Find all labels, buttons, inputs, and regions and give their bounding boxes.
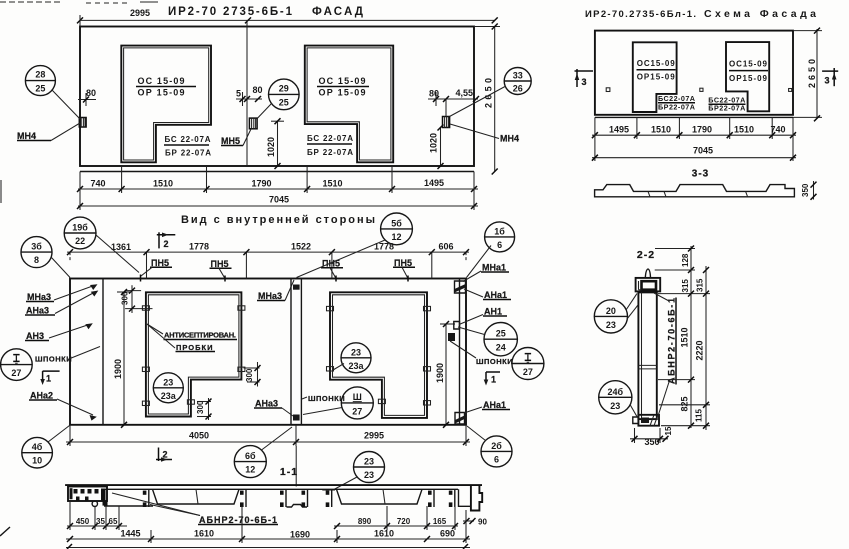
svg-text:ОР 15-09: ОР 15-09	[138, 88, 185, 98]
svg-text:ШПОНКИ: ШПОНКИ	[35, 355, 72, 364]
svg-text:1790: 1790	[251, 179, 271, 189]
svg-text:5б: 5б	[391, 218, 402, 228]
svg-text:6: 6	[494, 454, 499, 464]
svg-text:1510: 1510	[153, 179, 173, 189]
svg-text:740: 740	[90, 179, 105, 189]
svg-text:6: 6	[497, 240, 502, 250]
svg-text:35: 35	[96, 517, 105, 526]
svg-text:АНа3: АНа3	[255, 399, 278, 409]
svg-text:12: 12	[245, 465, 255, 475]
svg-text:6б: 6б	[245, 451, 256, 461]
svg-text:29: 29	[279, 83, 289, 93]
svg-text:Схема Фасада: Схема Фасада	[704, 8, 818, 20]
svg-text:80: 80	[253, 85, 263, 95]
svg-text:1900: 1900	[113, 359, 123, 379]
svg-text:АБНР2-70-6Б-1: АБНР2-70-6Б-1	[199, 515, 277, 525]
svg-text:26: 26	[513, 84, 523, 94]
svg-text:20: 20	[606, 306, 616, 316]
svg-text:315: 315	[696, 278, 705, 292]
svg-text:АБНР2-70-6Б-1: АБНР2-70-6Б-1	[667, 298, 677, 384]
svg-text:АНТИСЕПТИРОВАН.: АНТИСЕПТИРОВАН.	[164, 331, 236, 340]
svg-text:10: 10	[32, 456, 42, 466]
svg-text:8: 8	[34, 255, 39, 265]
svg-text:1-1: 1-1	[280, 466, 298, 478]
svg-text:БС 22-07А: БС 22-07А	[307, 134, 353, 143]
svg-text:ОР15-09: ОР15-09	[729, 74, 768, 83]
svg-text:1510: 1510	[680, 327, 690, 347]
svg-text:300: 300	[245, 368, 254, 382]
svg-text:4050: 4050	[189, 431, 209, 441]
svg-text:1510: 1510	[734, 125, 754, 135]
svg-text:27: 27	[352, 406, 362, 416]
svg-text:825: 825	[680, 396, 690, 411]
svg-text:606: 606	[438, 242, 453, 252]
svg-text:23: 23	[351, 347, 361, 357]
svg-text:ШПОНКИ: ШПОНКИ	[308, 394, 345, 403]
svg-text:27: 27	[11, 368, 21, 378]
svg-text:25: 25	[279, 98, 289, 108]
svg-text:315: 315	[681, 279, 690, 293]
svg-text:65: 65	[109, 517, 118, 526]
svg-text:33: 33	[513, 70, 523, 80]
svg-text:3-3: 3-3	[692, 169, 709, 180]
svg-text:23: 23	[364, 470, 374, 480]
svg-text:Вид с внутренней стороны: Вид с внутренней стороны	[181, 214, 377, 226]
svg-text:23а: 23а	[348, 361, 364, 371]
svg-text:БР 22-07А: БР 22-07А	[165, 149, 211, 158]
svg-text:1445: 1445	[120, 529, 140, 539]
svg-text:АНа1: АНа1	[483, 400, 506, 410]
svg-text:ОР 15-09: ОР 15-09	[319, 88, 366, 98]
svg-text:АНа2: АНа2	[30, 391, 53, 401]
svg-text:ПН5: ПН5	[211, 259, 229, 269]
svg-text:23: 23	[606, 320, 616, 330]
svg-text:БР22-07А: БР22-07А	[708, 104, 745, 113]
svg-text:7045: 7045	[693, 145, 713, 155]
svg-text:ОС15-09: ОС15-09	[637, 59, 676, 68]
svg-text:80: 80	[86, 88, 96, 98]
svg-text:МНа3: МНа3	[258, 291, 282, 301]
svg-text:ОР15-09: ОР15-09	[637, 72, 676, 81]
svg-text:МН5: МН5	[221, 136, 240, 146]
svg-text:ШПОНКИ: ШПОНКИ	[476, 357, 513, 366]
svg-text:1: 1	[46, 374, 51, 384]
svg-text:23а: 23а	[161, 391, 177, 401]
svg-text:3б: 3б	[31, 242, 42, 252]
svg-text:890: 890	[358, 517, 372, 526]
svg-text:АН1: АН1	[484, 307, 502, 317]
svg-text:ПН5: ПН5	[394, 258, 412, 268]
svg-text:БР 22-07А: БР 22-07А	[307, 148, 353, 157]
svg-text:МНа1: МНа1	[482, 263, 506, 273]
svg-text:ОС 15-09: ОС 15-09	[138, 76, 185, 86]
svg-text:1б: 1б	[494, 226, 505, 236]
svg-text:300: 300	[196, 400, 205, 414]
svg-text:740: 740	[770, 125, 785, 135]
svg-text:ОС15-09: ОС15-09	[729, 59, 768, 68]
svg-text:4,55: 4,55	[456, 88, 474, 98]
svg-text:15: 15	[664, 426, 673, 435]
svg-text:ПРОБКИ: ПРОБКИ	[176, 343, 214, 352]
svg-text:128: 128	[681, 253, 690, 267]
svg-text:АНа1: АНа1	[484, 290, 507, 300]
svg-text:АН3: АН3	[26, 331, 44, 341]
svg-text:1510: 1510	[651, 125, 671, 135]
svg-text:1522: 1522	[291, 242, 311, 252]
svg-text:90: 90	[478, 518, 487, 527]
svg-text:720: 720	[397, 517, 411, 526]
svg-text:1610: 1610	[374, 529, 394, 539]
svg-text:1510: 1510	[322, 179, 342, 189]
svg-text:1690: 1690	[290, 530, 310, 540]
svg-text:28: 28	[35, 70, 45, 80]
svg-text:ОС 15-09: ОС 15-09	[319, 76, 366, 86]
svg-text:1: 1	[491, 375, 496, 385]
svg-text:2: 2	[164, 239, 169, 249]
svg-text:690: 690	[440, 529, 455, 539]
svg-text:1778: 1778	[189, 242, 209, 252]
svg-text:ИР2-70 2735-6Б-1: ИР2-70 2735-6Б-1	[168, 6, 294, 18]
svg-text:1790: 1790	[692, 125, 712, 135]
svg-text:350: 350	[801, 183, 810, 197]
svg-text:19б: 19б	[72, 223, 88, 233]
svg-text:115: 115	[695, 409, 704, 422]
svg-text:1020: 1020	[429, 133, 439, 153]
svg-text:2995: 2995	[130, 8, 150, 18]
svg-text:АНа3: АНа3	[26, 306, 49, 316]
svg-text:5: 5	[236, 89, 241, 99]
svg-text:23: 23	[610, 401, 620, 411]
svg-text:24б: 24б	[608, 387, 624, 397]
svg-text:23: 23	[163, 377, 173, 387]
svg-text:3: 3	[825, 76, 830, 86]
svg-text:25: 25	[496, 329, 506, 339]
svg-text:23: 23	[364, 457, 374, 467]
svg-text:2: 2	[163, 450, 168, 460]
svg-text:2б: 2б	[491, 441, 502, 451]
svg-text:1495: 1495	[424, 178, 444, 188]
svg-text:165: 165	[433, 517, 447, 526]
svg-text:12: 12	[391, 232, 401, 242]
svg-text:22: 22	[75, 236, 85, 246]
svg-text:350: 350	[644, 437, 659, 447]
svg-text:1495: 1495	[609, 125, 629, 135]
svg-text:25: 25	[35, 84, 45, 94]
svg-text:2220: 2220	[695, 340, 705, 360]
svg-text:3: 3	[582, 77, 587, 87]
svg-text:БС 22-07А: БС 22-07А	[165, 135, 211, 144]
svg-text:7045: 7045	[269, 195, 289, 205]
svg-text:БР22-07А: БР22-07А	[658, 102, 695, 111]
svg-text:2650: 2650	[807, 59, 817, 88]
svg-text:МН4: МН4	[500, 134, 519, 144]
svg-text:27: 27	[523, 367, 533, 377]
svg-text:1900: 1900	[435, 363, 445, 383]
svg-text:450: 450	[76, 517, 90, 526]
svg-text:1610: 1610	[194, 529, 214, 539]
svg-text:4б: 4б	[32, 442, 43, 452]
svg-text:Ш: Ш	[353, 392, 362, 402]
svg-text:ФАСАД: ФАСАД	[312, 6, 367, 18]
svg-text:24: 24	[496, 343, 506, 353]
svg-text:1020: 1020	[266, 137, 276, 157]
svg-text:2-2: 2-2	[637, 249, 655, 261]
svg-text:МН4: МН4	[17, 131, 36, 141]
svg-text:МНа3: МНа3	[27, 292, 51, 302]
svg-text:2995: 2995	[364, 431, 384, 441]
svg-text:ПН5: ПН5	[151, 258, 169, 268]
svg-text:ИР2-70.2735-6Бл-1.: ИР2-70.2735-6Бл-1.	[585, 9, 697, 20]
